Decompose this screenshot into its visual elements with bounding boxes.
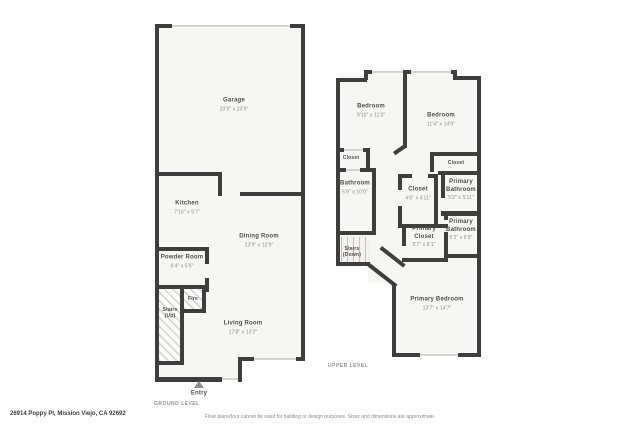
- room-dims: 6'4" x 5'6": [161, 263, 204, 269]
- room-label-closet-right: Closet: [448, 160, 464, 166]
- room-label-kitchen: Kitchen 7'10" x 9'7": [174, 201, 200, 216]
- room-label-bathroom: Bathroom 5'9" x 10'0": [340, 181, 370, 196]
- ground-level-title: GROUND LEVEL: [154, 401, 200, 407]
- entry-door-line: [222, 378, 238, 380]
- wall: [477, 76, 481, 357]
- room-name: Dining Room: [239, 234, 279, 242]
- room-label-primary-bedroom: Primary Bedroom 13'7" x 14'7": [410, 297, 463, 312]
- upper-level-title: UPPER LEVEL: [328, 363, 368, 369]
- room-label-primary-bathroom-top: Primary Bathroom 5'2" x 5'11": [442, 179, 480, 201]
- room-dims: 7'10" x 9'7": [174, 209, 200, 215]
- room-name: Powder Room: [161, 255, 204, 263]
- entry-arrow-icon: [194, 381, 204, 388]
- wall: [434, 152, 477, 156]
- wall: [155, 172, 222, 176]
- room-dims: 13'7" x 14'7": [410, 305, 463, 311]
- room-name: Primary Bathroom: [442, 179, 480, 194]
- stairs-up-hatch: [159, 289, 180, 361]
- room-dims: 5'9" x 10'0": [340, 189, 370, 195]
- wall: [392, 285, 396, 357]
- room-dims: 17'8" x 13'2": [224, 329, 263, 335]
- fire-text: Fire: [188, 296, 198, 302]
- room-name: Primary Bedroom: [410, 297, 463, 305]
- room-name: Living Room: [224, 321, 263, 329]
- wall: [238, 357, 254, 361]
- room-label-closet-middle: Closet 4'6" x 4'11": [405, 187, 430, 202]
- wall: [155, 361, 184, 365]
- room-dims: 9'10" x 11'3": [357, 112, 385, 118]
- room-name: Primary Bathroom: [442, 219, 480, 234]
- room-label-closet-left: Closet: [343, 155, 359, 161]
- wall: [155, 377, 222, 382]
- closet-door-line: [344, 149, 363, 151]
- room-name: Bedroom: [357, 104, 385, 112]
- wall: [364, 70, 372, 74]
- property-address: 26914 Poppy Pl, Mission Viejo, CA 92692: [10, 411, 126, 417]
- room-dims: 4'6" x 4'11": [405, 195, 430, 201]
- entry-text: Entry: [191, 390, 207, 398]
- room-dims: 5'2" x 6'9": [442, 235, 480, 241]
- stairs-down-label: Stairs (Down): [343, 246, 361, 259]
- wall: [392, 353, 420, 357]
- room-name: Bathroom: [340, 181, 370, 189]
- room-name: Primary Closet: [405, 226, 443, 241]
- room-name: Kitchen: [174, 201, 200, 209]
- fireplace-label: Fire: [188, 296, 198, 302]
- window-line: [372, 71, 403, 73]
- room-label-living-room: Living Room 17'8" x 13'2": [224, 321, 263, 336]
- room-label-garage: Garage 20'5" x 23'9": [220, 98, 249, 113]
- room-label-primary-closet: Primary Closet 5'7" x 6'1": [405, 226, 443, 248]
- room-label-primary-bathroom-bottom: Primary Bathroom 5'2" x 6'9": [442, 219, 480, 241]
- wall: [155, 247, 209, 251]
- stairs-up-label: Stairs (Up): [162, 307, 177, 320]
- room-name: Closet: [343, 155, 359, 161]
- room-dims: 11'4" x 14'9": [427, 121, 455, 127]
- room-name: Bedroom: [427, 113, 455, 121]
- room-label-bedroom-left: Bedroom 9'10" x 11'3": [357, 104, 385, 119]
- wall: [336, 168, 346, 172]
- room-name: Closet: [405, 187, 430, 195]
- room-label-powder-room: Powder Room 6'4" x 5'6": [161, 255, 204, 270]
- wall: [336, 78, 340, 266]
- window-line: [420, 354, 458, 356]
- room-dims: 5'7" x 6'1": [405, 242, 443, 248]
- wall: [218, 172, 222, 196]
- wall: [301, 24, 305, 361]
- wall: [184, 309, 206, 313]
- wall: [434, 174, 438, 228]
- wall: [336, 231, 376, 235]
- stairs-line2: (Down): [343, 252, 361, 258]
- wall: [402, 258, 448, 262]
- room-dims: 13'9" x 12'9": [239, 242, 279, 248]
- door-line: [346, 169, 360, 171]
- room-name: Closet: [448, 160, 464, 166]
- wall: [296, 357, 305, 361]
- wall: [444, 254, 477, 258]
- wall: [205, 247, 209, 264]
- floorplan-page: Garage 20'5" x 23'9" Kitchen 7'10" x 9'7…: [0, 0, 640, 427]
- entry-label: Entry: [191, 390, 207, 398]
- wall: [403, 74, 407, 148]
- wall: [372, 168, 376, 235]
- room-label-dining-room: Dining Room 13'9" x 12'9": [239, 234, 279, 249]
- wall: [336, 148, 344, 152]
- wall: [398, 174, 402, 190]
- wall: [458, 353, 481, 357]
- garage-door-line: [172, 25, 290, 27]
- wall: [336, 78, 367, 82]
- window-line: [254, 358, 296, 360]
- disclaimer-text: Floor plans/tour cannot be used for buil…: [205, 414, 435, 420]
- room-dims: 5'2" x 5'11": [442, 195, 480, 201]
- wall: [240, 192, 301, 196]
- room-label-bedroom-right: Bedroom 11'4" x 14'9": [427, 113, 455, 128]
- window-line: [411, 71, 451, 73]
- room-name: Garage: [220, 98, 249, 106]
- stairs-line2: (Up): [162, 313, 177, 319]
- room-dims: 20'5" x 23'9": [220, 106, 249, 112]
